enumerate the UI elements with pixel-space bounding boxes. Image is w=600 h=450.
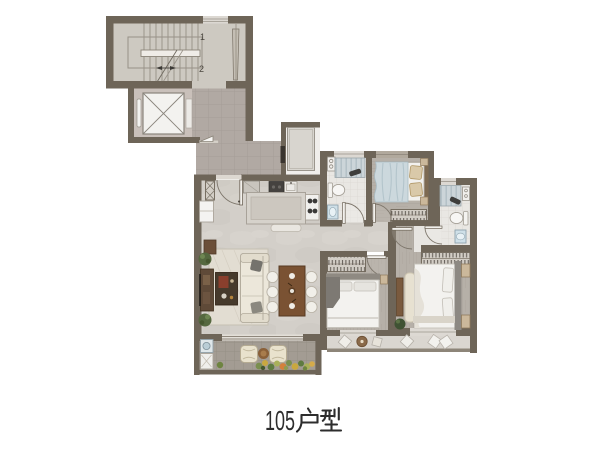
svg-text:1: 1 <box>200 32 205 42</box>
svg-text:105: 105 <box>265 405 295 436</box>
svg-text:2: 2 <box>199 64 204 74</box>
